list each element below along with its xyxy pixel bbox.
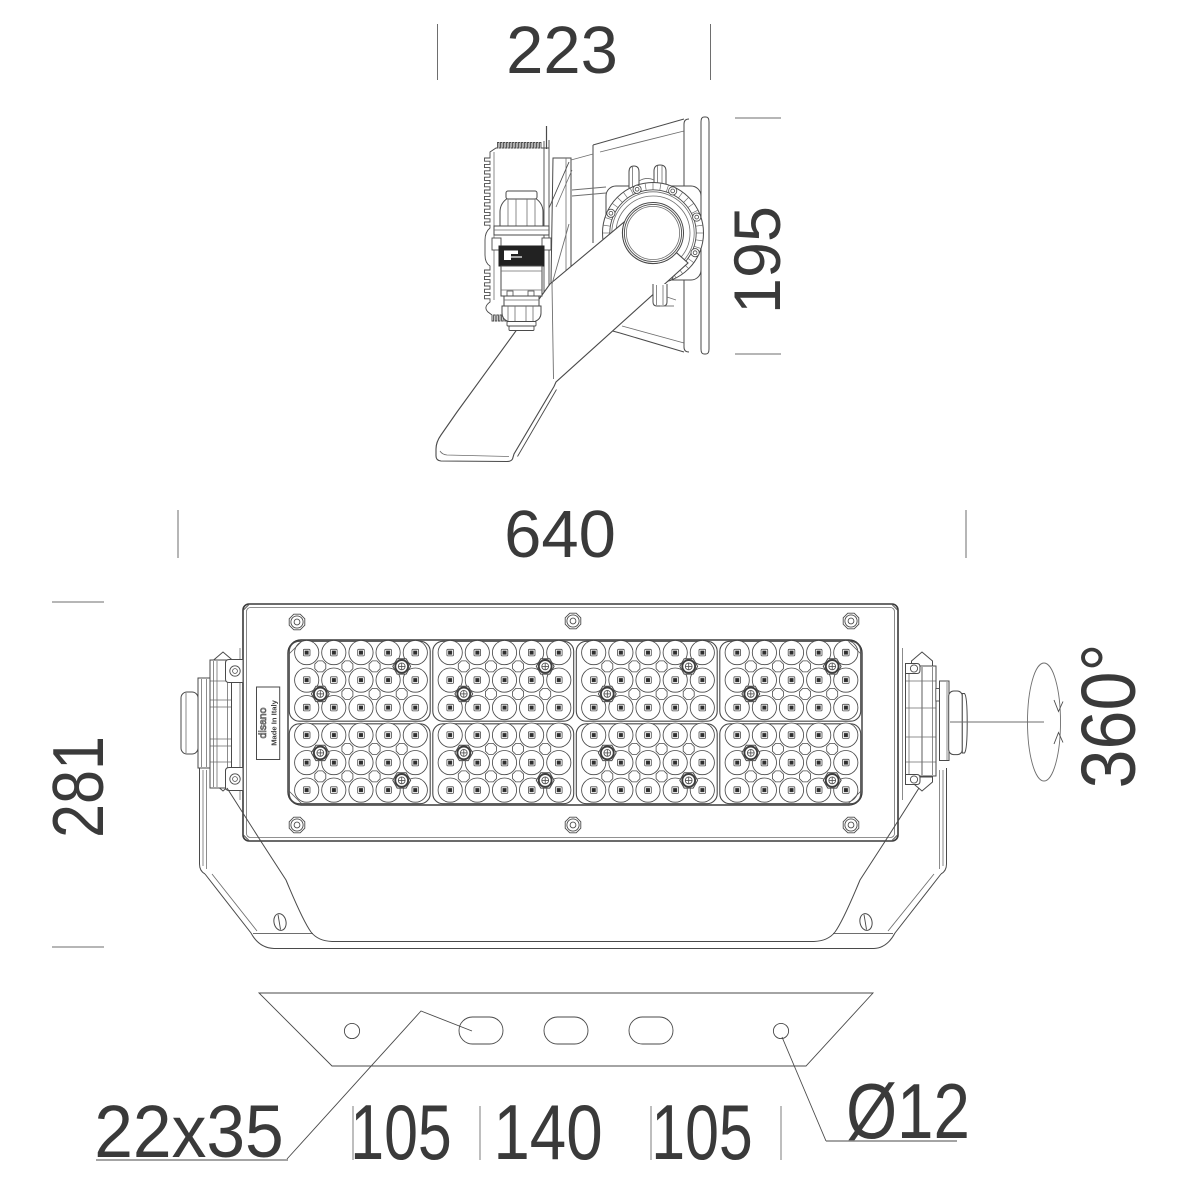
svg-text:195: 195 bbox=[720, 206, 794, 314]
svg-text:640: 640 bbox=[504, 497, 616, 572]
svg-text:105: 105 bbox=[350, 1089, 452, 1176]
svg-text:22x35: 22x35 bbox=[94, 1091, 283, 1173]
svg-text:360°: 360° bbox=[1065, 644, 1152, 789]
svg-text:Made In Italy: Made In Italy bbox=[270, 699, 279, 745]
svg-text:disano: disano bbox=[257, 707, 269, 738]
svg-text:140: 140 bbox=[493, 1090, 602, 1177]
svg-text:Ø12: Ø12 bbox=[846, 1069, 970, 1156]
svg-text:105: 105 bbox=[651, 1089, 753, 1176]
svg-text:223: 223 bbox=[506, 13, 618, 88]
svg-text:281: 281 bbox=[39, 736, 119, 838]
